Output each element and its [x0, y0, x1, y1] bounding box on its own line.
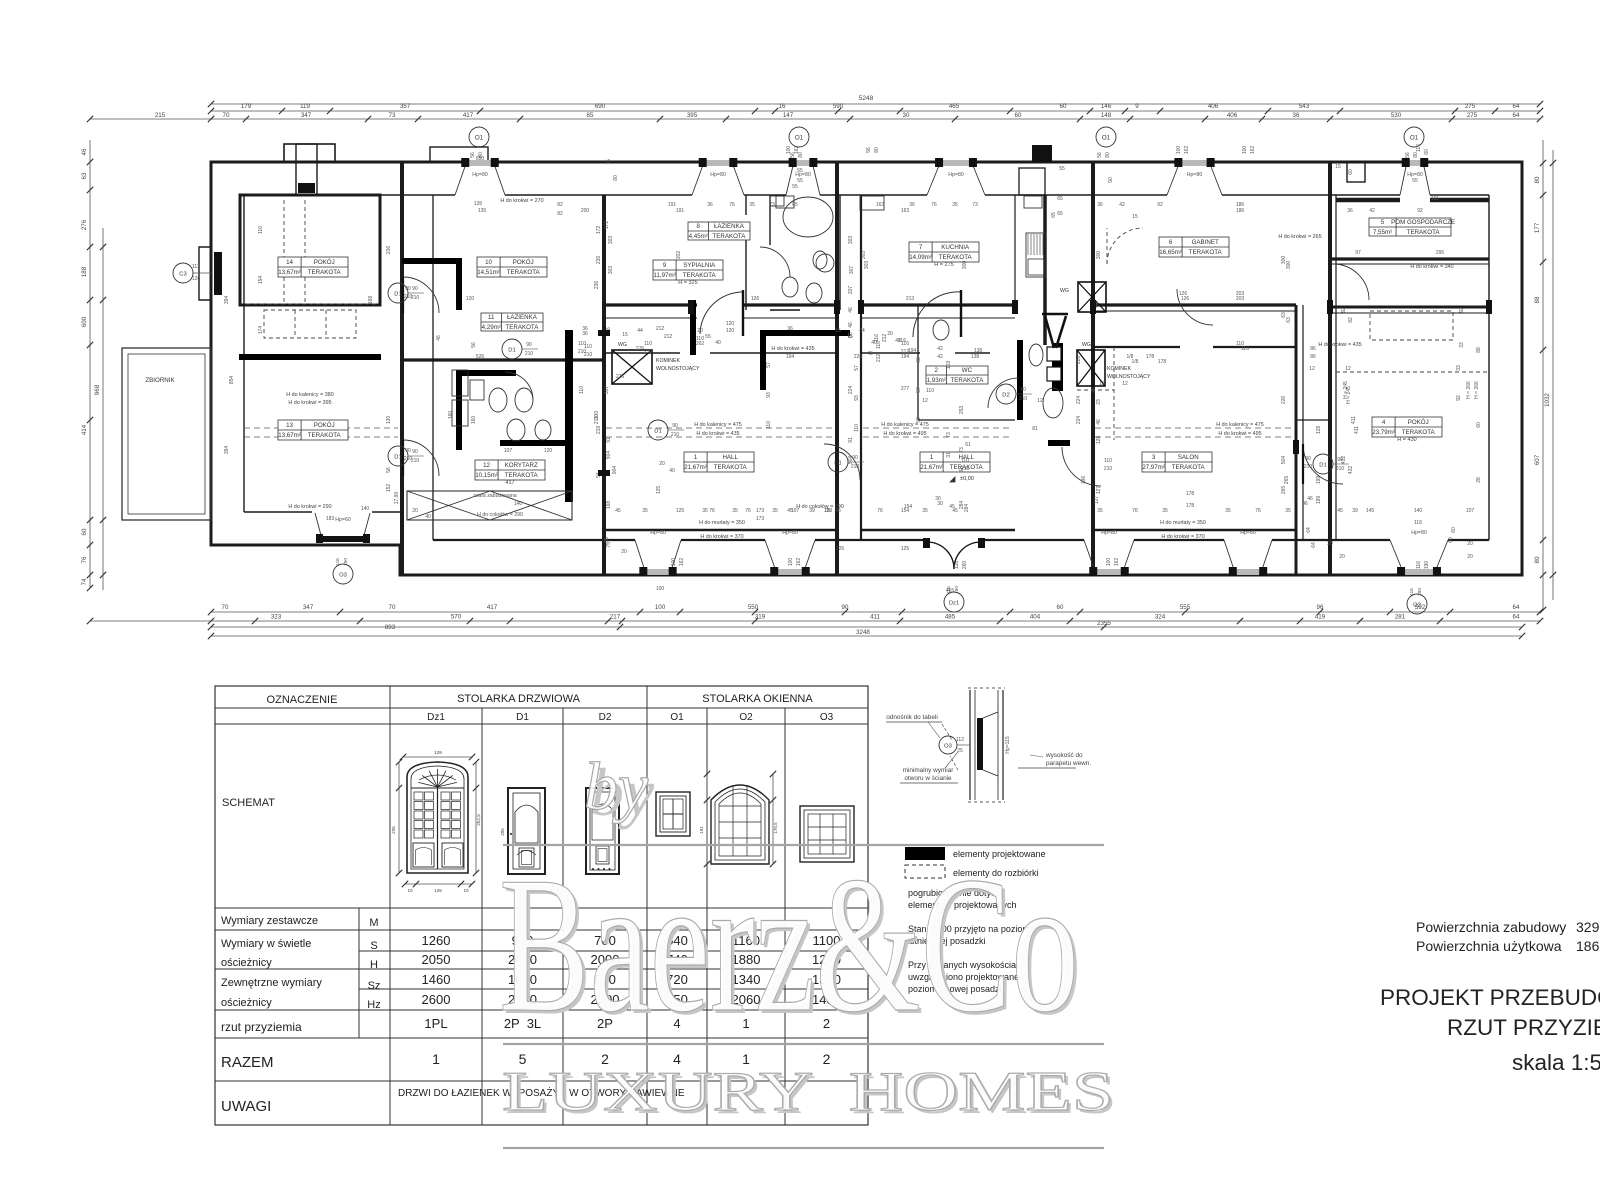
svg-text:4,45m²: 4,45m² [689, 233, 708, 240]
svg-text:KOMINEK: KOMINEK [1107, 366, 1131, 372]
svg-text:191: 191 [676, 208, 685, 214]
svg-text:Sz: Sz [368, 980, 381, 992]
svg-text:WOLNOSTOJĄCY: WOLNOSTOJĄCY [656, 366, 700, 372]
svg-text:5248: 5248 [859, 95, 874, 102]
svg-text:110: 110 [926, 388, 934, 394]
svg-text:GABINET: GABINET [1192, 239, 1219, 246]
svg-text:TERAKOTA: TERAKOTA [308, 269, 342, 276]
svg-text:210: 210 [644, 349, 653, 355]
svg-text:162: 162 [1114, 558, 1120, 567]
svg-text:236: 236 [386, 246, 392, 255]
svg-text:76: 76 [729, 202, 735, 208]
svg-text:92: 92 [1456, 395, 1462, 401]
svg-text:212: 212 [656, 326, 665, 332]
svg-text:40: 40 [871, 340, 877, 346]
svg-text:46: 46 [1096, 419, 1102, 425]
svg-text:H do krokwi = 290: H do krokwi = 290 [288, 504, 331, 510]
svg-text:64: 64 [1513, 103, 1520, 110]
svg-text:55: 55 [1059, 166, 1065, 172]
svg-text:Hp=80: Hp=80 [1240, 530, 1256, 536]
svg-text:411: 411 [1351, 416, 1357, 424]
svg-text:15: 15 [1132, 214, 1138, 220]
svg-text:13,67m²: 13,67m² [278, 432, 301, 439]
svg-text:rzut przyziemia: rzut przyziemia [221, 1020, 302, 1034]
svg-text:100: 100 [671, 558, 677, 567]
svg-text:276: 276 [636, 346, 645, 352]
svg-text:55: 55 [797, 168, 803, 174]
svg-text:74: 74 [81, 578, 88, 585]
svg-text:303: 303 [608, 236, 614, 245]
svg-text:138: 138 [971, 354, 980, 360]
svg-text:90: 90 [842, 604, 849, 611]
svg-text:10: 10 [407, 888, 413, 893]
svg-text:36: 36 [909, 202, 915, 208]
svg-text:210: 210 [961, 466, 970, 472]
svg-text:1: 1 [432, 1051, 440, 1067]
svg-text:85: 85 [587, 112, 594, 119]
svg-text:D1: D1 [394, 292, 401, 298]
svg-text:35: 35 [772, 508, 778, 514]
svg-text:28: 28 [1476, 477, 1482, 483]
svg-text:128: 128 [1096, 436, 1102, 445]
svg-text:432: 432 [1348, 466, 1354, 475]
svg-text:10: 10 [463, 888, 469, 893]
svg-text:STOLARKA DRZWIOWA: STOLARKA DRZWIOWA [457, 693, 581, 705]
svg-text:65: 65 [1057, 211, 1063, 217]
svg-text:97: 97 [1355, 250, 1361, 256]
svg-text:226: 226 [1281, 396, 1287, 405]
svg-text:D1: D1 [654, 429, 661, 435]
svg-text:100: 100 [1176, 146, 1182, 155]
svg-text:92: 92 [1341, 307, 1347, 313]
svg-text:210: 210 [1304, 464, 1313, 470]
svg-text:3248: 3248 [856, 629, 870, 636]
svg-text:O3: O3 [820, 712, 834, 723]
svg-text:307: 307 [849, 266, 855, 275]
svg-text:POKÓJ: POKÓJ [1408, 419, 1429, 426]
svg-text:TERAKOTA: TERAKOTA [1402, 429, 1436, 436]
svg-text:H do krokwi = 265: H do krokwi = 265 [1278, 234, 1321, 240]
svg-text:90: 90 [405, 448, 411, 454]
svg-text:12: 12 [922, 398, 928, 404]
svg-text:178: 178 [1186, 503, 1195, 509]
svg-text:411: 411 [870, 614, 880, 621]
svg-text:281: 281 [1395, 614, 1406, 621]
svg-text:91: 91 [848, 437, 854, 443]
svg-text:wysokość do: wysokość do [1045, 752, 1083, 759]
svg-text:23: 23 [1096, 399, 1102, 405]
svg-text:347: 347 [303, 604, 314, 611]
svg-text:53: 53 [916, 417, 922, 423]
svg-text:329,: 329, [1576, 919, 1600, 935]
svg-text:56: 56 [866, 147, 872, 153]
svg-text:570: 570 [451, 614, 462, 621]
svg-text:15: 15 [606, 159, 612, 165]
svg-text:73: 73 [946, 432, 952, 438]
svg-text:45: 45 [1337, 508, 1343, 514]
svg-text:173: 173 [756, 516, 765, 522]
svg-text:60: 60 [1060, 103, 1067, 110]
svg-text:Hp=80: Hp=80 [472, 172, 488, 178]
svg-text:90: 90 [412, 449, 418, 455]
svg-text:14: 14 [286, 259, 293, 266]
svg-text:110: 110 [961, 458, 969, 464]
svg-text:110: 110 [579, 386, 585, 394]
svg-text:73: 73 [389, 112, 396, 119]
svg-text:276: 276 [616, 374, 625, 380]
svg-text:162: 162 [1184, 146, 1190, 155]
svg-text:S: S [370, 940, 377, 952]
svg-text:60: 60 [1057, 604, 1064, 611]
svg-text:126: 126 [954, 561, 960, 570]
svg-text:TERAKOTA: TERAKOTA [712, 233, 746, 240]
svg-text:90: 90 [405, 286, 411, 292]
svg-text:1,93m²: 1,93m² [927, 377, 946, 384]
svg-text:H do krokwi = 370: H do krokwi = 370 [1161, 534, 1204, 540]
svg-text:76: 76 [745, 508, 751, 514]
svg-text:199: 199 [1316, 476, 1322, 485]
svg-text:485: 485 [945, 614, 956, 621]
svg-text:POKÓJ: POKÓJ [314, 422, 335, 429]
svg-text:H do cokołów = 290: H do cokołów = 290 [477, 512, 523, 518]
svg-text:44: 44 [859, 328, 865, 334]
svg-text:107: 107 [791, 508, 800, 514]
svg-text:168: 168 [368, 296, 374, 305]
svg-text:1: 1 [930, 454, 934, 461]
svg-text:61: 61 [965, 442, 971, 448]
svg-text:80: 80 [1105, 152, 1111, 158]
svg-text:186: 186 [1236, 202, 1245, 208]
svg-text:100: 100 [1106, 558, 1112, 567]
svg-text:81: 81 [1032, 426, 1038, 432]
svg-text:1/8: 1/8 [1132, 359, 1139, 365]
svg-text:110: 110 [766, 421, 772, 429]
svg-text:KORYTARZ: KORYTARZ [505, 462, 538, 469]
svg-text:107: 107 [1466, 508, 1475, 514]
svg-text:H do krokwi = 270: H do krokwi = 270 [500, 198, 543, 204]
svg-text:H do kalenicy = 475: H do kalenicy = 475 [694, 422, 742, 428]
svg-text:91: 91 [606, 437, 612, 443]
svg-text:D1: D1 [508, 348, 515, 354]
svg-text:120: 120 [824, 508, 833, 514]
svg-text:35: 35 [922, 508, 928, 514]
svg-text:406: 406 [1208, 103, 1219, 110]
svg-text:10,15m²: 10,15m² [475, 472, 498, 479]
svg-text:14,51m²: 14,51m² [477, 269, 500, 276]
svg-text:196: 196 [1081, 476, 1087, 485]
svg-text:555: 555 [1180, 604, 1191, 611]
svg-text:116: 116 [1409, 588, 1415, 596]
svg-text:POKÓJ: POKÓJ [314, 259, 335, 266]
svg-text:395: 395 [687, 112, 698, 119]
svg-text:35: 35 [732, 508, 738, 514]
svg-text:46: 46 [436, 335, 442, 341]
svg-text:Hp=115: Hp=115 [1005, 736, 1011, 754]
svg-text:417: 417 [505, 480, 514, 486]
svg-text:SYPIALNIA: SYPIALNIA [683, 262, 716, 269]
svg-text:Hz: Hz [367, 999, 380, 1011]
svg-text:otworu w ścianie: otworu w ścianie [904, 775, 952, 782]
svg-text:H do krokwi = 435: H do krokwi = 435 [1318, 342, 1361, 348]
svg-text:135: 135 [474, 201, 483, 207]
svg-text:36: 36 [582, 326, 588, 332]
svg-text:RZUT PRZYZIEMIA: RZUT PRZYZIEMIA [1447, 1015, 1600, 1040]
svg-text:116: 116 [1416, 144, 1422, 152]
svg-text:275: 275 [1467, 112, 1478, 119]
svg-text:17,90: 17,90 [394, 492, 400, 505]
svg-text:146: 146 [1101, 103, 1112, 110]
svg-text:Wymiary zestawcze: Wymiary zestawcze [221, 915, 318, 927]
svg-text:129: 129 [434, 750, 442, 755]
svg-text:145: 145 [1366, 508, 1375, 514]
svg-text:55: 55 [792, 184, 798, 190]
svg-text:H = 266: H = 266 [1466, 381, 1472, 399]
svg-text:162: 162 [796, 558, 802, 567]
svg-text:Dz1: Dz1 [427, 712, 445, 723]
svg-text:148: 148 [1101, 112, 1112, 119]
svg-text:110: 110 [584, 344, 592, 350]
svg-text:1460: 1460 [422, 972, 451, 987]
svg-text:60: 60 [1015, 112, 1022, 119]
svg-text:80: 80 [874, 147, 880, 153]
svg-text:138: 138 [974, 348, 983, 354]
svg-text:300: 300 [962, 261, 968, 270]
svg-text:WC: WC [962, 367, 973, 374]
svg-text:39: 39 [809, 508, 815, 514]
svg-text:90: 90 [672, 423, 678, 429]
svg-text:21,67m²: 21,67m² [920, 464, 943, 471]
svg-text:253: 253 [959, 406, 965, 415]
svg-text:174: 174 [258, 326, 264, 335]
svg-text:178: 178 [1186, 491, 1195, 497]
svg-text:57: 57 [766, 362, 772, 368]
svg-text:20: 20 [1327, 541, 1333, 547]
svg-text:D2: D2 [599, 712, 612, 723]
svg-text:212: 212 [876, 354, 882, 363]
svg-text:O2: O2 [739, 712, 753, 723]
svg-text:110: 110 [644, 341, 652, 347]
svg-text:20: 20 [412, 508, 418, 514]
svg-text:690: 690 [595, 103, 606, 110]
svg-text:194: 194 [901, 354, 910, 360]
svg-text:56: 56 [1405, 152, 1411, 158]
svg-text:OZNACZENIE: OZNACZENIE [267, 694, 338, 706]
svg-text:36: 36 [707, 202, 713, 208]
svg-text:90: 90 [1305, 456, 1311, 462]
svg-text:419: 419 [1315, 614, 1326, 621]
svg-text:55: 55 [705, 334, 711, 340]
svg-text:172: 172 [604, 221, 610, 230]
svg-text:226: 226 [1076, 356, 1082, 365]
svg-text:31: 31 [946, 452, 952, 458]
svg-text:TERAKOTA: TERAKOTA [1189, 249, 1223, 256]
svg-text:20: 20 [887, 331, 893, 337]
svg-text:110: 110 [854, 424, 860, 432]
svg-text:POKÓJ: POKÓJ [513, 259, 534, 266]
svg-text:H = 325: H = 325 [678, 280, 697, 286]
svg-text:TERAKOTA: TERAKOTA [1407, 229, 1441, 236]
svg-text:Wymiary w świetle: Wymiary w świetle [221, 938, 311, 950]
svg-text:35: 35 [642, 508, 648, 514]
svg-text:WG: WG [1082, 342, 1091, 348]
svg-text:H = 430: H = 430 [1397, 437, 1416, 443]
svg-text:162: 162 [794, 146, 800, 155]
svg-text:120: 120 [726, 328, 735, 334]
svg-text:968: 968 [94, 384, 101, 395]
svg-text:36: 36 [1347, 208, 1353, 214]
svg-text:100: 100 [655, 604, 666, 611]
svg-text:5: 5 [1381, 219, 1385, 226]
svg-text:35: 35 [952, 202, 958, 208]
svg-text:odnośnik do tabeli: odnośnik do tabeli [886, 714, 938, 721]
svg-text:56: 56 [386, 467, 392, 473]
svg-text:224: 224 [1076, 396, 1082, 405]
svg-text:Hp=80: Hp=80 [650, 530, 666, 536]
svg-text:42: 42 [1369, 208, 1375, 214]
svg-text:35: 35 [749, 202, 755, 208]
svg-text:300: 300 [1286, 261, 1292, 270]
svg-text:57: 57 [916, 387, 922, 393]
svg-text:504: 504 [848, 456, 854, 465]
svg-text:90: 90 [412, 286, 418, 292]
svg-text:H do murłaty = 350: H do murłaty = 350 [1160, 520, 1206, 526]
svg-text:15: 15 [622, 332, 628, 338]
svg-text:303: 303 [608, 266, 614, 275]
svg-text:191: 191 [668, 202, 677, 208]
svg-text:16,65m²: 16,65m² [1159, 249, 1182, 256]
svg-text:188: 188 [81, 266, 88, 277]
svg-text:92: 92 [1417, 208, 1423, 214]
svg-text:H = 266: H = 266 [1474, 381, 1480, 399]
svg-text:210: 210 [1336, 466, 1345, 472]
svg-text:432: 432 [1341, 456, 1347, 465]
svg-text:63: 63 [1281, 312, 1287, 318]
svg-text:O3: O3 [944, 744, 952, 750]
svg-text:LUXURY HOMES: LUXURY HOMES [502, 1061, 1114, 1123]
svg-text:45: 45 [949, 504, 955, 510]
svg-text:60: 60 [1348, 169, 1354, 175]
svg-text:140: 140 [361, 506, 370, 512]
svg-text:199: 199 [1316, 496, 1322, 505]
svg-text:276: 276 [81, 219, 88, 230]
svg-text:42: 42 [937, 354, 943, 360]
svg-text:skala 1:50: skala 1:50 [1512, 1050, 1600, 1075]
svg-text:ZBIORNIK: ZBIORNIK [145, 377, 175, 384]
svg-text:224: 224 [848, 386, 854, 395]
svg-text:63: 63 [1286, 317, 1292, 323]
svg-text:WG: WG [618, 342, 627, 348]
svg-text:394: 394 [224, 296, 230, 305]
svg-text:Powierzchnia zabudowy: Powierzchnia zabudowy [1416, 919, 1566, 935]
svg-text:H = 275: H = 275 [934, 262, 953, 268]
svg-text:161: 161 [1431, 196, 1440, 202]
svg-text:80: 80 [1534, 176, 1541, 183]
svg-text:O1: O1 [795, 135, 804, 142]
svg-text:92: 92 [1459, 307, 1465, 313]
svg-text:64: 64 [1513, 604, 1520, 611]
svg-text:893: 893 [385, 624, 396, 631]
svg-text:8: 8 [697, 223, 701, 230]
svg-text:75: 75 [606, 542, 612, 548]
svg-text:284: 284 [964, 504, 970, 513]
svg-text:ŁAZIENKA: ŁAZIENKA [507, 314, 538, 321]
svg-text:96: 96 [1317, 604, 1324, 611]
svg-text:323: 323 [271, 614, 282, 621]
svg-text:13: 13 [286, 422, 293, 429]
svg-text:92: 92 [1157, 202, 1163, 208]
svg-text:163: 163 [901, 208, 910, 214]
svg-text:207: 207 [848, 286, 854, 295]
svg-text:173: 173 [756, 508, 765, 514]
svg-text:ościeżnicy: ościeżnicy [221, 957, 272, 969]
svg-text:210: 210 [1104, 466, 1113, 472]
svg-text:64: 64 [1311, 542, 1317, 548]
svg-text:11: 11 [488, 314, 495, 321]
svg-text:168: 168 [606, 501, 612, 510]
svg-text:56: 56 [471, 342, 477, 348]
svg-text:64: 64 [1513, 614, 1520, 621]
svg-text:TERAKOTA: TERAKOTA [950, 377, 984, 384]
svg-text:93: 93 [766, 392, 772, 398]
svg-text:35: 35 [1285, 508, 1291, 514]
svg-text:190: 190 [1424, 561, 1430, 570]
svg-text:SCHEMAT: SCHEMAT [222, 797, 275, 809]
svg-text:ościeżnicy: ościeżnicy [221, 997, 272, 1009]
svg-text:112: 112 [192, 264, 200, 270]
svg-text:Hp=80: Hp=80 [1411, 530, 1427, 536]
svg-text:by: by [584, 748, 649, 824]
svg-text:135: 135 [478, 208, 487, 214]
svg-text:262: 262 [696, 341, 705, 347]
svg-text:H do krokwi = 495: H do krokwi = 495 [883, 431, 926, 437]
svg-text:45: 45 [835, 508, 841, 514]
svg-text:126: 126 [1179, 291, 1188, 297]
svg-text:177: 177 [1534, 222, 1541, 233]
svg-text:190: 190 [1417, 588, 1423, 596]
svg-text:2355: 2355 [1097, 620, 1111, 627]
svg-text:93: 93 [854, 395, 860, 401]
svg-text:205: 205 [391, 826, 396, 834]
svg-text:40: 40 [895, 338, 901, 344]
svg-text:H do krokwi = 495: H do krokwi = 495 [1218, 431, 1261, 437]
svg-text:D1: D1 [1319, 463, 1326, 469]
svg-text:212: 212 [664, 334, 673, 340]
svg-text:STOLARKA OKIENNA: STOLARKA OKIENNA [702, 693, 813, 705]
svg-text:107: 107 [504, 448, 513, 454]
svg-text:65: 65 [1057, 196, 1063, 202]
svg-text:57: 57 [854, 365, 860, 371]
svg-text:H do krokwi = 340: H do krokwi = 340 [1410, 264, 1453, 270]
svg-text:210: 210 [671, 432, 680, 438]
svg-text:RAZEM: RAZEM [221, 1054, 274, 1071]
svg-text:178: 178 [1146, 354, 1155, 360]
svg-text:KOMINEK: KOMINEK [656, 358, 680, 364]
svg-text:40: 40 [715, 340, 721, 346]
svg-text:TERAKOTA: TERAKOTA [507, 269, 541, 276]
svg-text:TERAKOTA: TERAKOTA [939, 254, 973, 261]
svg-text:324: 324 [1155, 614, 1166, 621]
svg-text:120: 120 [726, 321, 735, 327]
svg-text:190: 190 [343, 558, 349, 566]
svg-text:parapetu wewn.: parapetu wewn. [1046, 760, 1091, 767]
svg-text:120: 120 [544, 448, 553, 454]
svg-text:64: 64 [1513, 112, 1520, 119]
svg-text:35: 35 [1162, 508, 1168, 514]
svg-text:42: 42 [1119, 202, 1125, 208]
svg-text:1260: 1260 [422, 933, 451, 948]
svg-text:7: 7 [919, 244, 923, 251]
svg-text:35: 35 [702, 508, 708, 514]
